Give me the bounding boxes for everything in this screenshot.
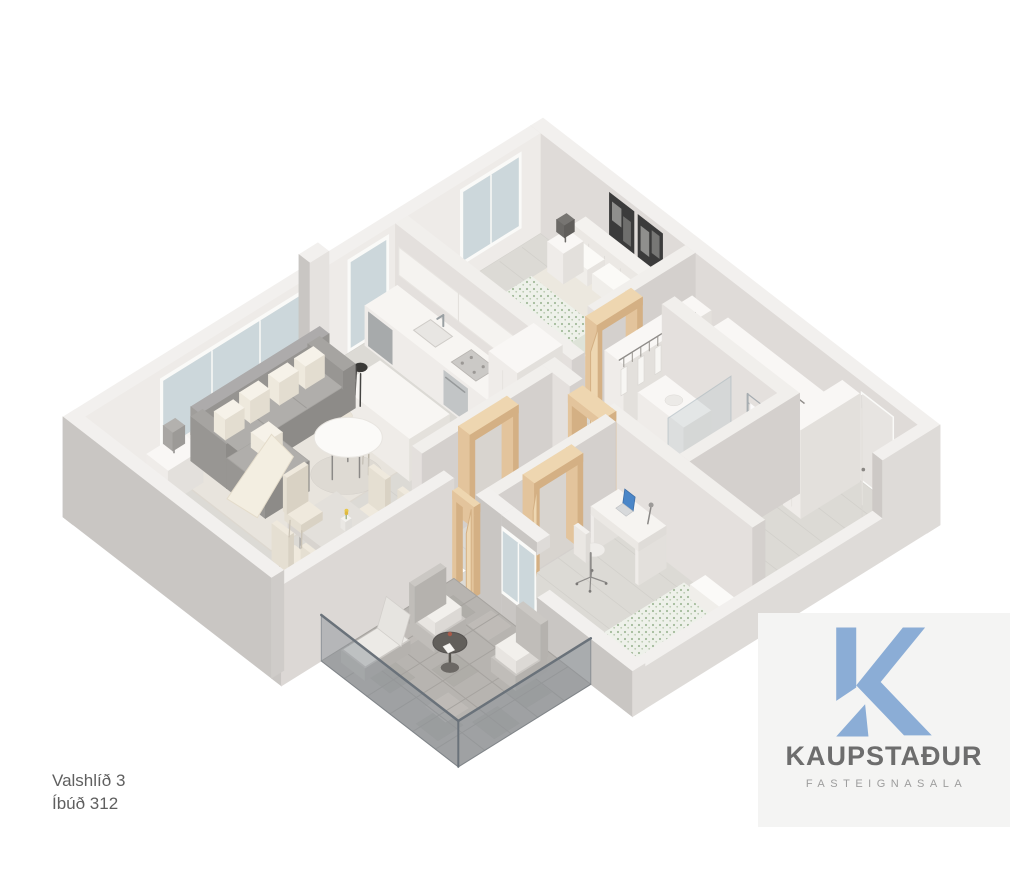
agency-tagline: FASTEIGNASALA: [806, 778, 967, 790]
address-block: Valshlíð 3 Íbúð 312: [52, 770, 125, 816]
address-street: Valshlíð 3: [52, 770, 125, 793]
address-apartment: Íbúð 312: [52, 793, 125, 816]
agency-name: KAUPSTAÐUR: [786, 741, 983, 772]
kaupstadur-k-icon: [834, 625, 934, 739]
agency-logo-panel: KAUPSTAÐUR FASTEIGNASALA: [758, 613, 1010, 827]
